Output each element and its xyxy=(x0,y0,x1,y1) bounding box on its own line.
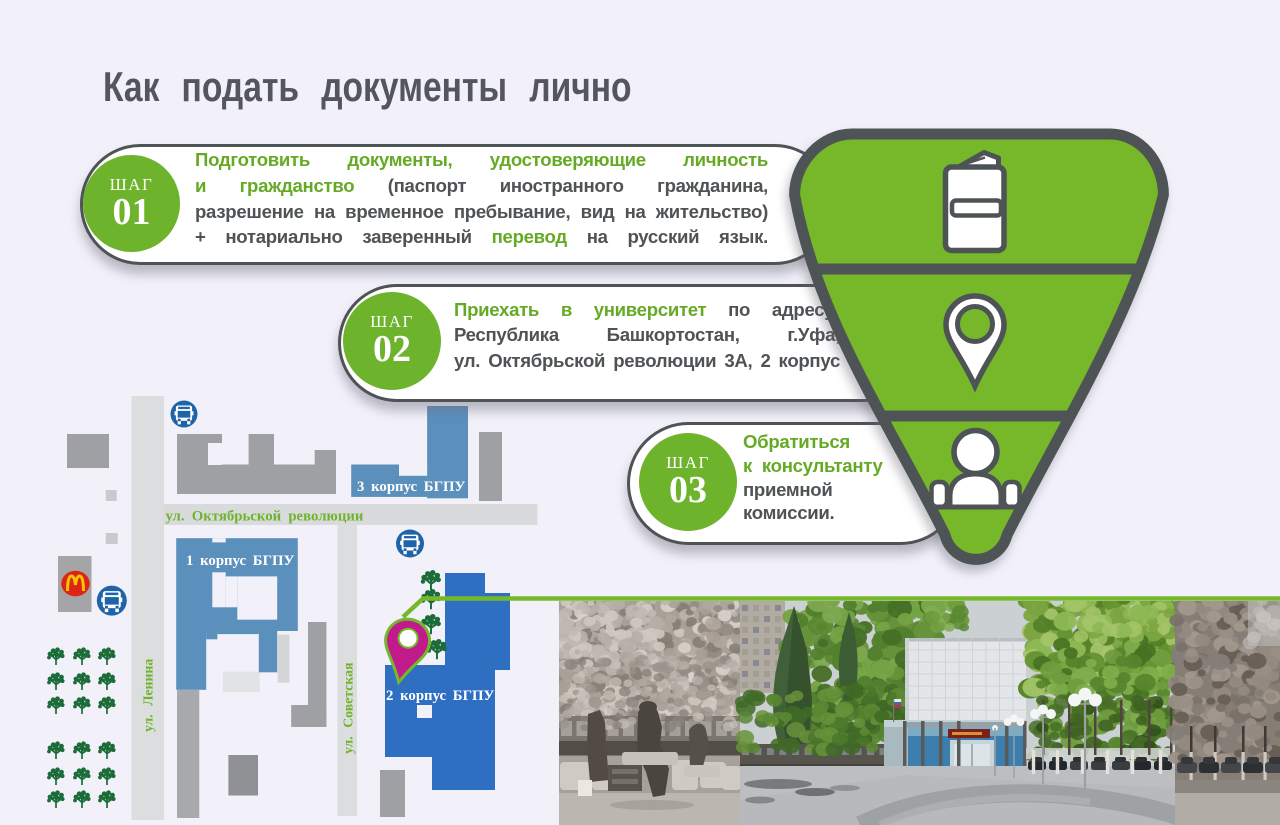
svg-text:ул. Ленина: ул. Ленина xyxy=(141,659,156,732)
svg-text:ул. Октябрьской революции: ул. Октябрьской революции xyxy=(166,509,364,525)
svg-text:2 корпус БГПУ: 2 корпус БГПУ xyxy=(386,688,494,704)
svg-text:1 корпус БГПУ: 1 корпус БГПУ xyxy=(186,553,294,569)
svg-text:ул. Советская: ул. Советская xyxy=(341,662,356,754)
svg-text:3 корпус БГПУ: 3 корпус БГПУ xyxy=(357,479,465,495)
